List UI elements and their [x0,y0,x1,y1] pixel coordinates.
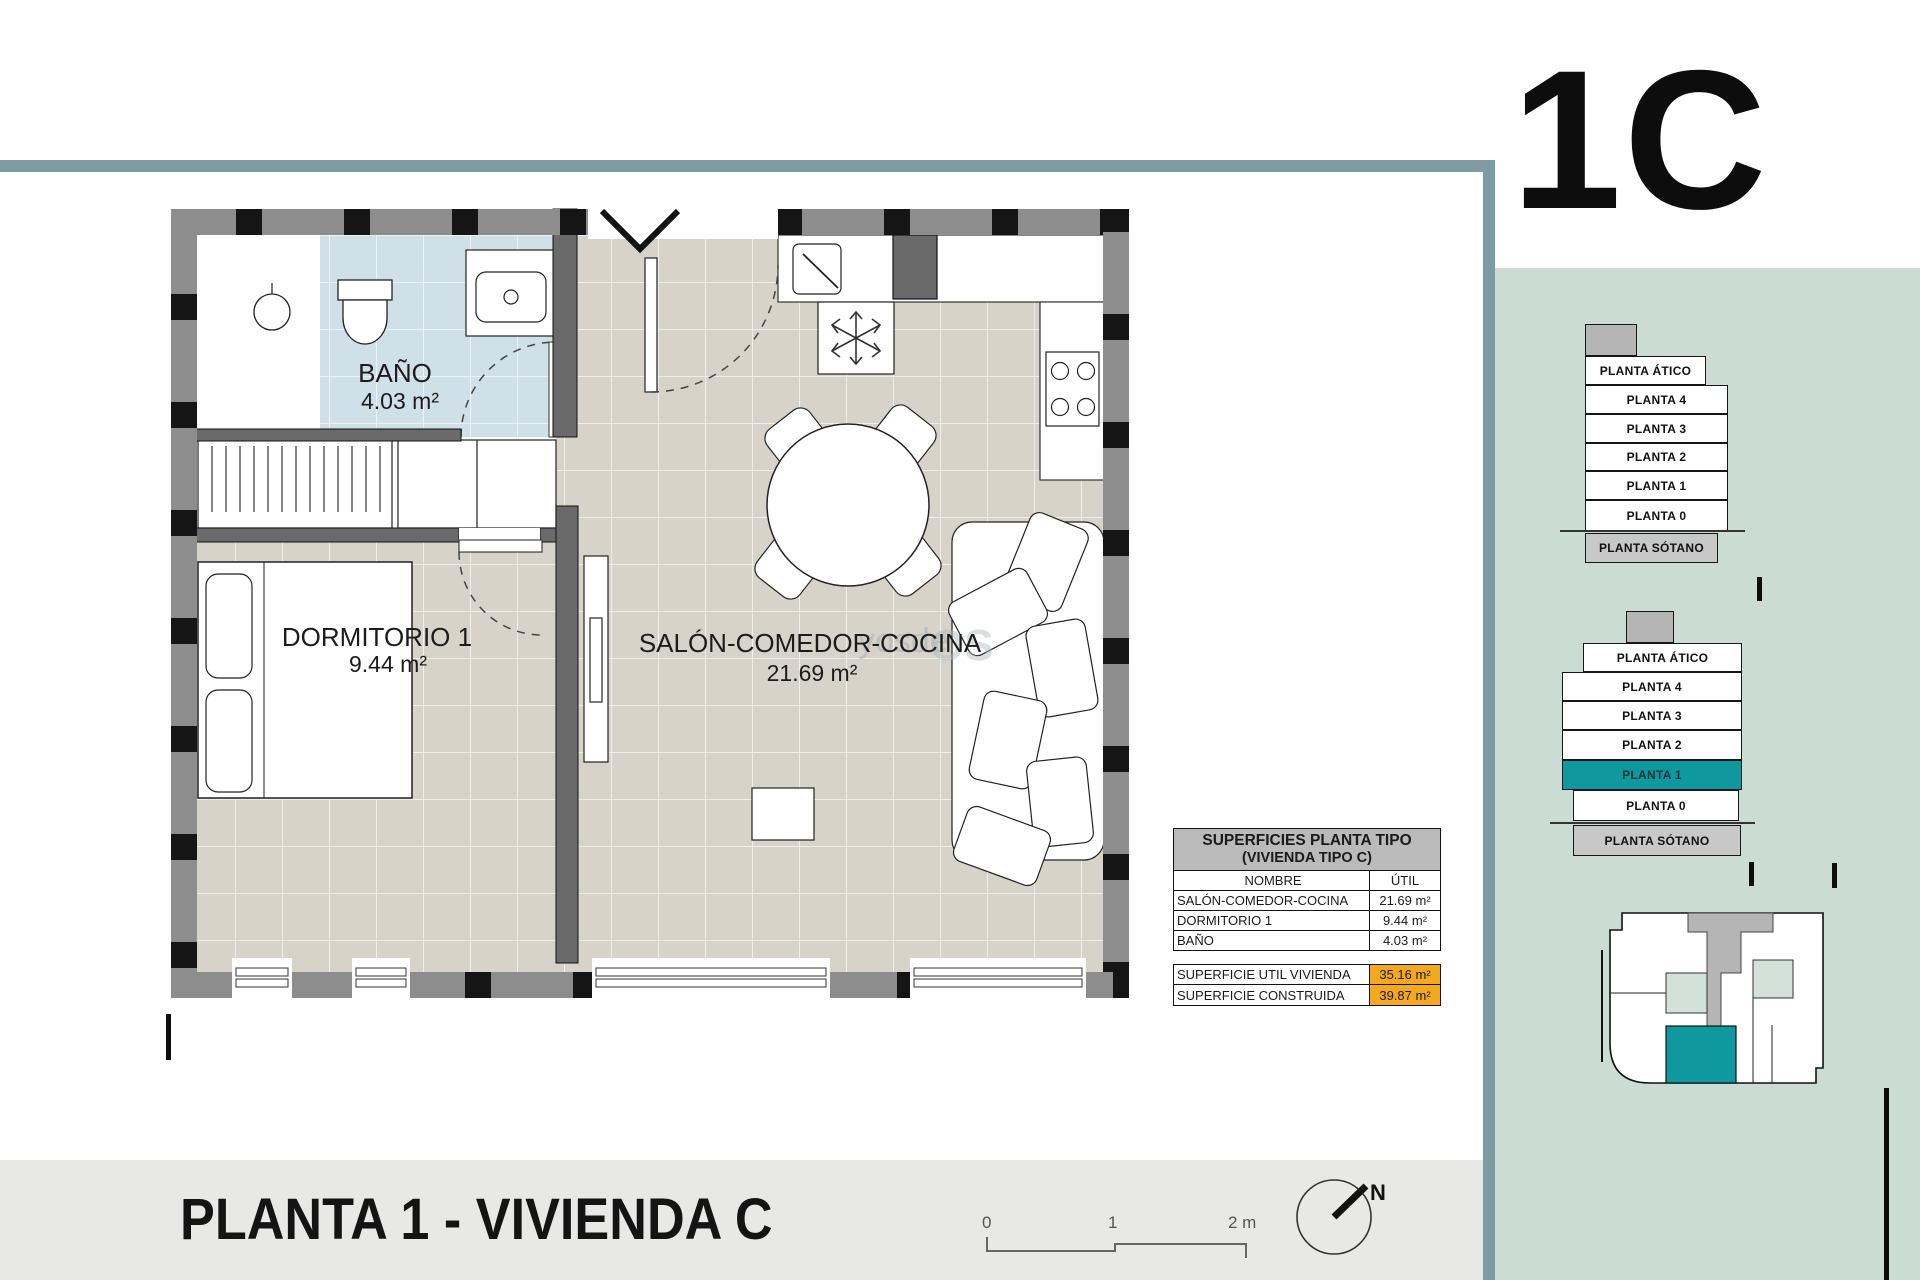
label-bano: BAÑO [358,358,432,388]
dining-set [750,400,946,604]
stack-top-floor-3: PLANTA 3 [1585,414,1728,443]
stack-top-ground-line [1560,530,1745,532]
floorplan-sheet: 1C PLANTA ÁTICO PLANTA 4 PLANTA 3 PLANTA… [0,0,1920,1280]
vertical-divider-rule [1483,160,1495,1280]
scale-label-0: 0 [982,1213,991,1232]
unit-code: 1C [1500,40,1780,240]
label-bano-area: 4.03 m² [361,388,439,414]
sheet-title: PLANTA 1 - VIVIENDA C [180,1186,773,1253]
top-border-rule [0,160,1494,172]
table-row-name: SALÓN-COMEDOR-COCINA [1173,891,1369,911]
highlighted-unit-c [1666,1026,1736,1083]
total-row-name: SUPERFICIE UTIL VIVIENDA [1173,964,1369,985]
stack-bottom-floor-atico: PLANTA ÁTICO [1583,643,1742,672]
total-row-value-highlighted: 35.16 m² [1369,964,1441,985]
wall-pier [893,235,937,299]
label-salon-area: 21.69 m² [767,660,858,686]
stack-bottom-floor-4: PLANTA 4 [1562,672,1742,701]
surfaces-title-line2: (VIVIENDA TIPO C) [1174,850,1440,866]
table-row-value: 9.44 m² [1369,911,1441,931]
surfaces-totals: SUPERFICIE UTIL VIVIENDA 35.16 m² SUPERF… [1173,964,1441,1006]
stack-bottom-ground-line [1550,822,1755,824]
double-bed [198,562,412,798]
edge-mark [1884,1088,1889,1280]
stack-bottom-roof-box [1626,611,1674,643]
pillow [206,574,252,678]
table-row-value: 21.69 m² [1369,891,1441,911]
total-row-value-highlighted: 39.87 m² [1369,985,1441,1006]
patio-block [1753,960,1793,998]
stack-top-floor-sotano: PLANTA SÓTANO [1585,533,1718,563]
wardrobe-closet [198,440,392,528]
scale-bar [987,1237,1246,1258]
pillow [206,690,252,792]
bedroom-door-leaf [459,540,542,552]
stack-top-floor-1: PLANTA 1 [1585,471,1728,500]
coffee-table [752,788,814,840]
kitchen-sink-icon [793,244,841,294]
stack-bottom-floor-3: PLANTA 3 [1562,701,1742,730]
windows [232,958,1086,1002]
sofa [945,510,1104,889]
stack-bottom-floor-2: PLANTA 2 [1562,730,1742,760]
round-dining-table [767,424,929,586]
utility-appliances [398,440,556,528]
label-dormitorio: DORMITORIO 1 [282,622,472,652]
tick-mark [1832,863,1837,888]
stack-bottom-floor-sotano: PLANTA SÓTANO [1573,825,1741,856]
label-dormitorio-area: 9.44 m² [349,651,427,677]
table-row-name: DORMITORIO 1 [1173,911,1369,931]
scale-label-2m: 2 m [1228,1213,1256,1232]
north-arrow-icon: N [1297,1180,1386,1254]
stack-bottom-floor-0: PLANTA 0 [1573,790,1739,821]
table-row-value: 4.03 m² [1369,931,1441,951]
patio-block [1666,973,1707,1013]
col-header-util: ÚTIL [1369,871,1441,891]
stack-top-floor-4: PLANTA 4 [1585,385,1728,414]
table-row-name: BAÑO [1173,931,1369,951]
tick-mark [1749,862,1754,886]
surfaces-table: SUPERFICIES PLANTA TIPO (VIVIENDA TIPO C… [1173,828,1441,1006]
scale-and-north: 0 1 2 m N [960,1165,1410,1275]
stove-icon [1046,352,1099,426]
stack-bottom-floor-1-highlighted: PLANTA 1 [1562,760,1742,790]
scale-label-1: 1 [1108,1213,1117,1232]
bath-sink-icon [466,250,556,336]
stack-top-floor-2: PLANTA 2 [1585,443,1728,471]
col-header-nombre: NOMBRE [1173,871,1369,891]
entrance-door-leaf [645,258,657,392]
fridge-snowflake-icon [818,302,894,374]
tick-mark [1757,577,1762,601]
tv-console [584,556,608,762]
surfaces-table-header: SUPERFICIES PLANTA TIPO (VIVIENDA TIPO C… [1173,828,1441,871]
floor-plan: yosde OS BAÑO 4.03 m² DORMITORIO 1 9.44 … [140,195,1140,1075]
total-row-name: SUPERFICIE CONSTRUIDA [1173,985,1369,1006]
stack-top-floor-0: PLANTA 0 [1585,500,1728,531]
north-label: N [1370,1180,1386,1205]
surfaces-table-grid: NOMBRE ÚTIL SALÓN-COMEDOR-COCINA 21.69 m… [1173,871,1441,951]
surfaces-title-line1: SUPERFICIES PLANTA TIPO [1174,832,1440,850]
label-salon: SALÓN-COMEDOR-COCINA [639,628,982,658]
stack-top-floor-atico: PLANTA ÁTICO [1585,356,1706,385]
stack-top-roof-box [1585,324,1637,356]
shower-drain-icon [254,294,290,330]
footprint-keyplan [1590,900,1840,1095]
